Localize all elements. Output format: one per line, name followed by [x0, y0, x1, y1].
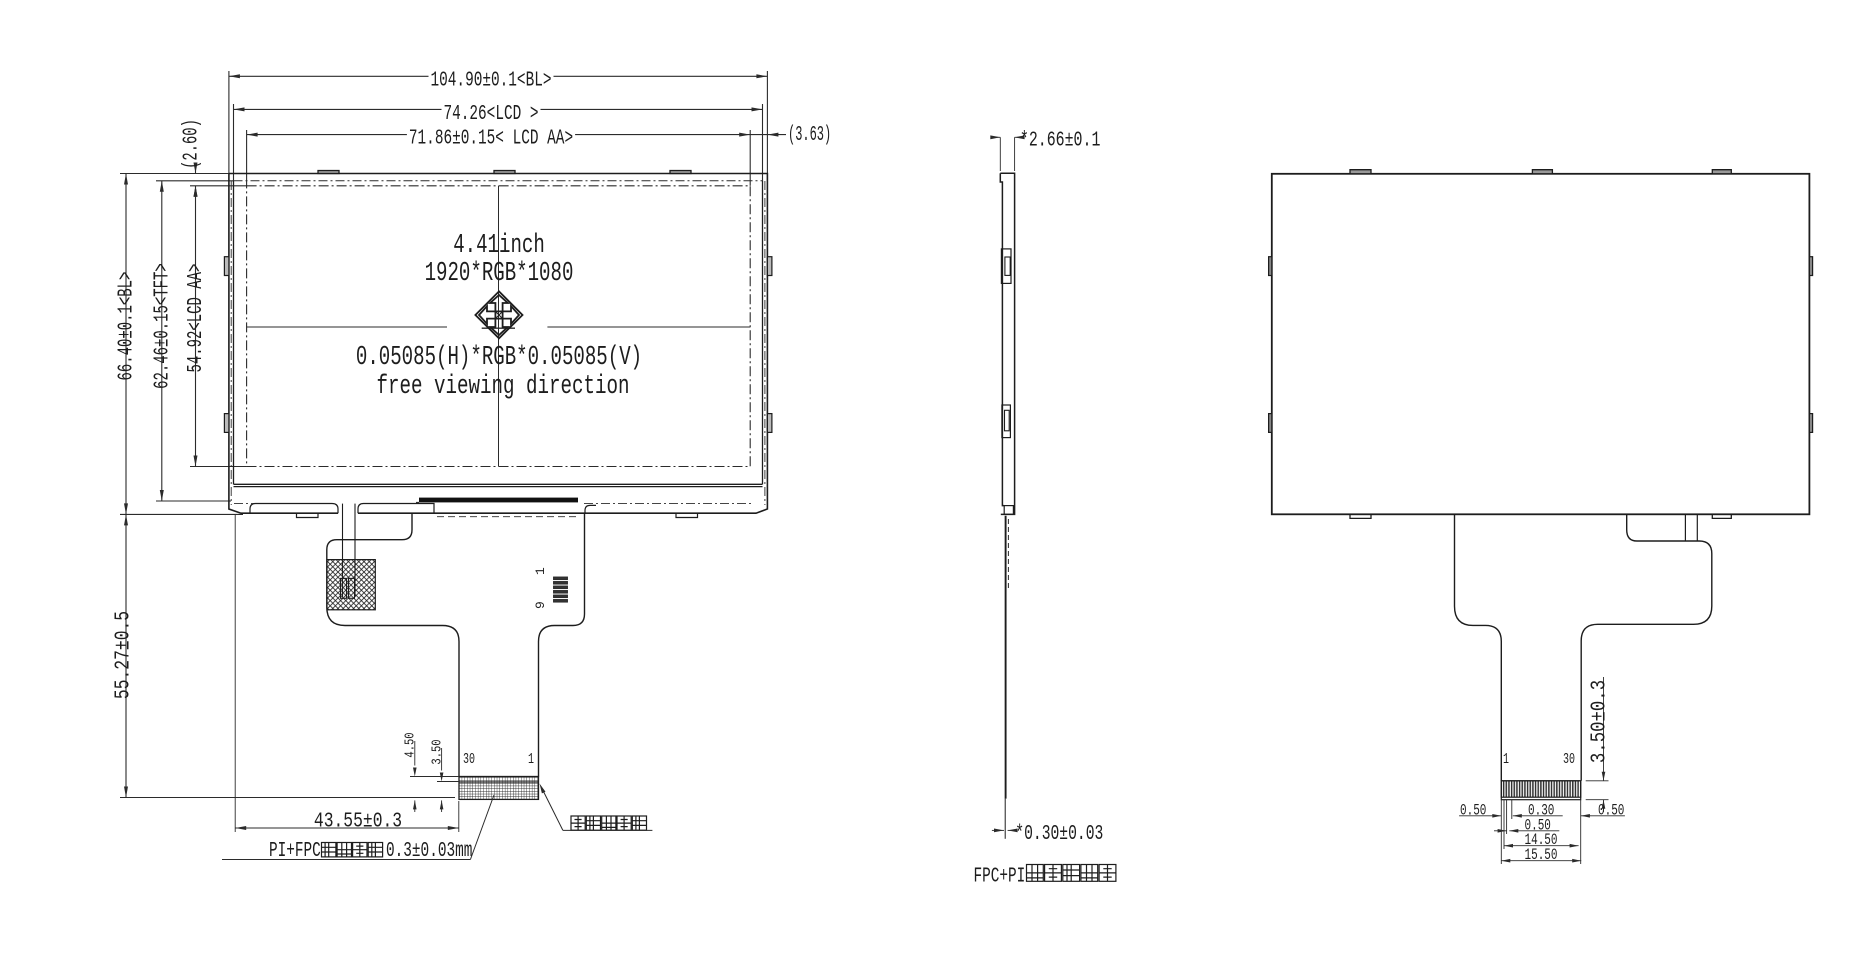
svg-text:*2.66±0.1: *2.66±0.1 [1020, 130, 1101, 153]
svg-text:1: 1 [528, 751, 534, 768]
svg-text:free viewing direction: free viewing direction [377, 372, 630, 402]
svg-text:0.50: 0.50 [1460, 802, 1486, 820]
svg-text:71.86±0.15< LCD AA>: 71.86±0.15< LCD AA> [409, 128, 573, 151]
svg-text:3.50±0.3: 3.50±0.3 [1589, 680, 1612, 763]
svg-text:30: 30 [463, 751, 475, 768]
svg-text:0.50: 0.50 [1598, 802, 1624, 820]
svg-text:43.55±0.3: 43.55±0.3 [314, 811, 402, 834]
svg-text:66.40±0.1<BL>: 66.40±0.1<BL> [116, 272, 139, 381]
svg-text:62.46±0.15<TFT>: 62.46±0.15<TFT> [151, 263, 174, 389]
svg-text:3.50: 3.50 [429, 739, 445, 764]
svg-text:4.50: 4.50 [403, 732, 419, 757]
svg-text:1920*RGB*1080: 1920*RGB*1080 [425, 259, 574, 289]
svg-text:9: 9 [533, 601, 548, 609]
svg-text:104.90±0.1<BL>: 104.90±0.1<BL> [431, 70, 552, 93]
svg-text:FPC+PI: FPC+PI [974, 866, 1026, 889]
svg-text:74.26<LCD >: 74.26<LCD > [444, 103, 539, 126]
svg-text:54.92<LCD AA>: 54.92<LCD AA> [185, 264, 208, 373]
svg-text:(2.60): (2.60) [181, 119, 204, 169]
svg-text:(3.63): (3.63) [788, 124, 831, 147]
svg-text:1: 1 [1503, 751, 1509, 768]
svg-text:0.05085(H)*RGB*0.05085(V): 0.05085(H)*RGB*0.05085(V) [356, 343, 642, 373]
svg-text:*0.30±0.03: *0.30±0.03 [1015, 823, 1103, 846]
svg-text:55.27±0.5: 55.27±0.5 [113, 611, 136, 699]
svg-text:1: 1 [533, 567, 548, 575]
svg-text:30: 30 [1563, 751, 1575, 768]
svg-text:15.50: 15.50 [1525, 846, 1558, 864]
svg-text:4.41inch: 4.41inch [453, 231, 545, 261]
